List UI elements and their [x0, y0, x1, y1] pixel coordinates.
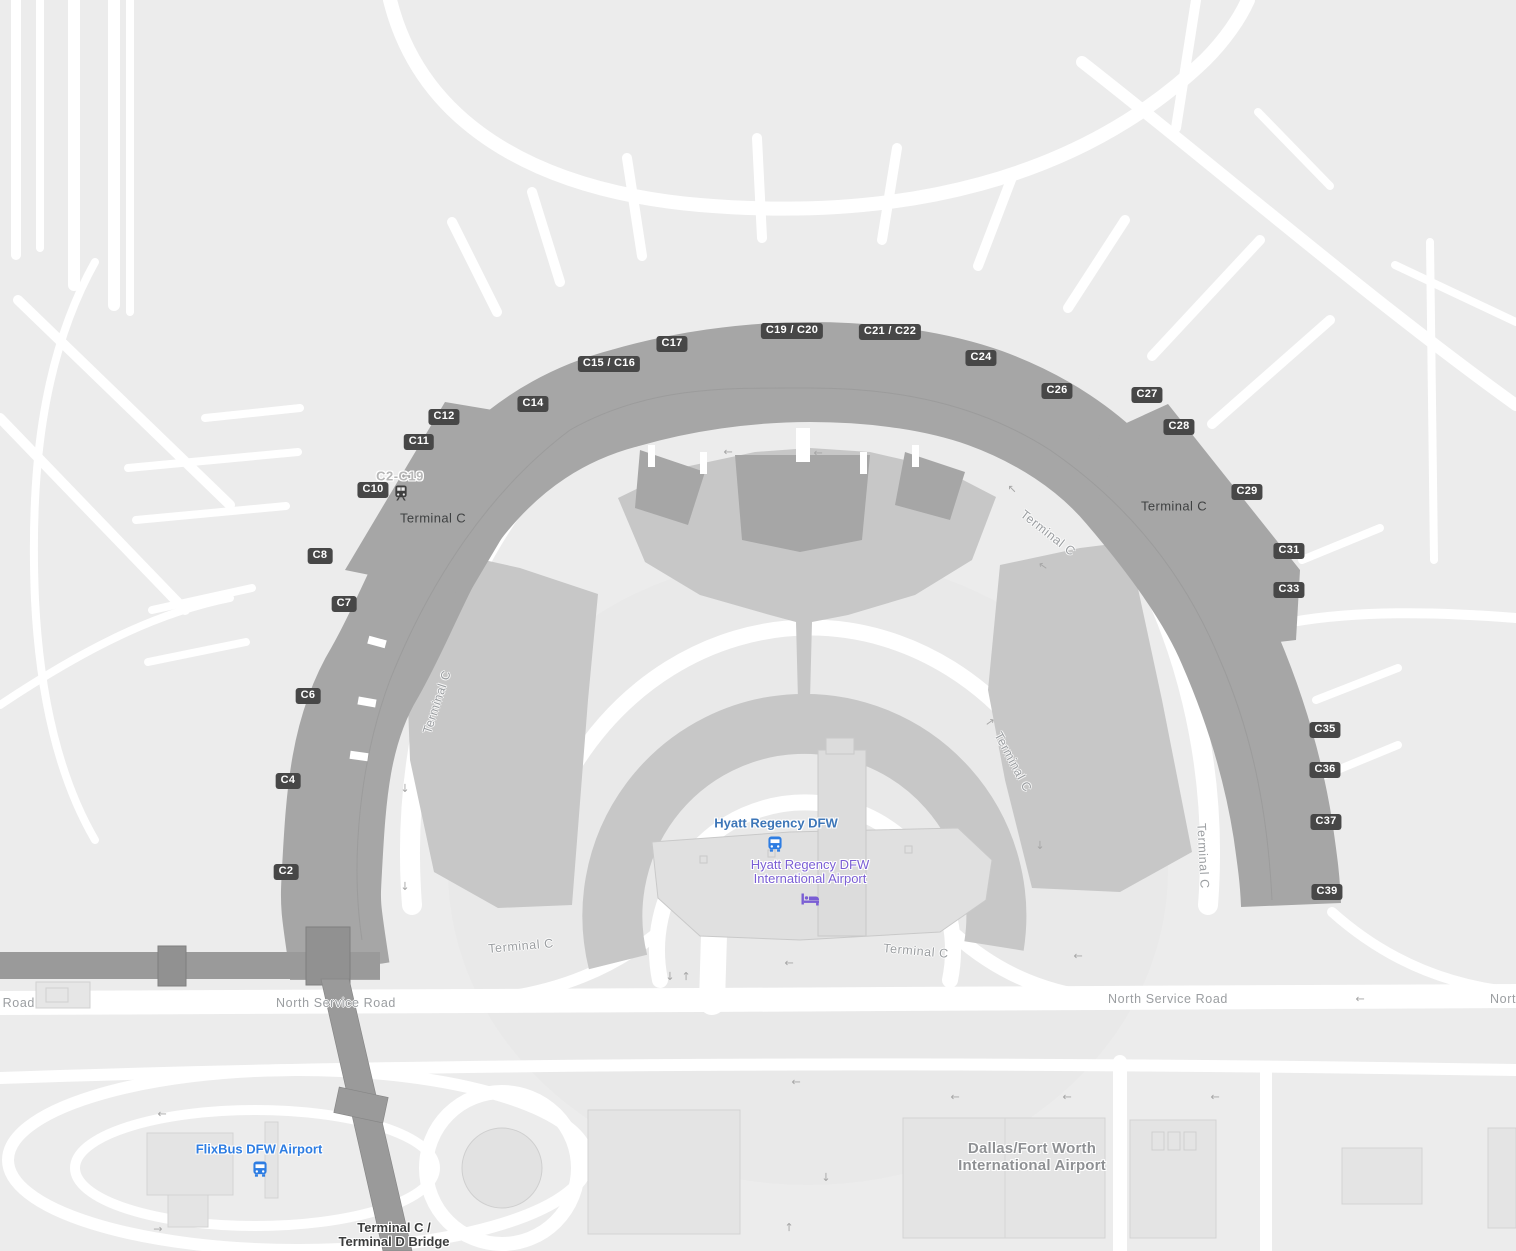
terminal-bridge-label: Terminal C / Terminal D Bridge [338, 1221, 449, 1249]
bed-icon[interactable] [801, 893, 820, 906]
flixbus-stop-label[interactable]: FlixBus DFW Airport [196, 1142, 323, 1157]
traffic-arrow-7: → [681, 971, 692, 980]
gate-badge-c7[interactable]: C7 [332, 596, 357, 612]
dfw-airport-label: Dallas/Fort Worth International Airport [958, 1140, 1106, 1174]
terminal-building-label-1: Terminal C [1141, 499, 1207, 514]
dfw-hq-building [903, 1118, 1105, 1238]
gate-badge-c19c20[interactable]: C19 / C20 [761, 323, 823, 339]
gate-badge-c12[interactable]: C12 [428, 409, 459, 425]
traffic-arrow-10: → [723, 447, 732, 458]
gate-badge-c24[interactable]: C24 [965, 350, 996, 366]
gate-badge-c28[interactable]: C28 [1163, 419, 1194, 435]
traffic-arrow-15: → [1035, 840, 1046, 849]
gate-badge-c21c22[interactable]: C21 / C22 [859, 324, 921, 340]
traffic-arrow-4: → [950, 1092, 959, 1103]
hyatt-hotel-label[interactable]: Hyatt Regency DFW International Airport [751, 858, 869, 886]
gate-badge-c8[interactable]: C8 [308, 548, 333, 564]
traffic-arrow-1: → [1073, 951, 1082, 962]
traffic-arrow-18: → [791, 1077, 800, 1088]
north-service-road [0, 996, 1516, 1003]
bus-icon[interactable] [768, 836, 783, 853]
gate-badge-c36[interactable]: C36 [1309, 762, 1340, 778]
gate-badge-c6[interactable]: C6 [296, 688, 321, 704]
traffic-arrow-20: → [784, 1222, 795, 1231]
traffic-arrow-9: → [400, 881, 411, 890]
traffic-arrow-19: → [821, 1172, 832, 1181]
traffic-arrow-8: → [400, 783, 411, 792]
gate-badge-c10[interactable]: C10 [357, 482, 388, 498]
gate-badge-c39[interactable]: C39 [1311, 884, 1342, 900]
terminal-building-label-0: Terminal C [400, 511, 466, 526]
gate-badge-c33[interactable]: C33 [1273, 582, 1304, 598]
train-icon[interactable] [394, 485, 409, 502]
traffic-arrow-16: → [157, 1109, 166, 1120]
traffic-arrow-6: → [665, 971, 676, 980]
gate-badge-c15c16[interactable]: C15 / C16 [578, 356, 640, 372]
map-canvas [0, 0, 1516, 1251]
traffic-arrow-11: → [813, 448, 822, 459]
gate-badge-c14[interactable]: C14 [517, 396, 548, 412]
gate-badge-c27[interactable]: C27 [1131, 387, 1162, 403]
gate-badge-c17[interactable]: C17 [656, 336, 687, 352]
gate-badge-c35[interactable]: C35 [1309, 722, 1340, 738]
traffic-arrow-5: → [1062, 1092, 1071, 1103]
gate-badge-c29[interactable]: C29 [1231, 484, 1262, 500]
gate-badge-c2[interactable]: C2 [274, 864, 299, 880]
airport-map: Hyatt Regency DFW Hyatt Regency DFW Inte… [0, 0, 1516, 1251]
gate-badge-c31[interactable]: C31 [1273, 543, 1304, 559]
traffic-arrow-3: → [1210, 1092, 1219, 1103]
gate-badge-c4[interactable]: C4 [276, 773, 301, 789]
bus-icon[interactable] [253, 1161, 268, 1178]
road-label-3: North Service Road [1490, 992, 1516, 1006]
gate-badge-c11[interactable]: C11 [404, 434, 434, 450]
road-label-0: North Service Road [276, 996, 396, 1010]
road-label-2: North Service Road [0, 996, 35, 1010]
traffic-arrow-0: → [784, 958, 793, 969]
traffic-arrow-17: → [153, 1224, 162, 1235]
traffic-arrow-2: → [1355, 994, 1364, 1005]
hyatt-bus-stop-label[interactable]: Hyatt Regency DFW [714, 816, 838, 831]
gate-badge-c37[interactable]: C37 [1310, 814, 1341, 830]
gate-badge-c26[interactable]: C26 [1041, 383, 1072, 399]
round-building [462, 1128, 542, 1208]
skylink-guideway [0, 927, 380, 986]
road-label-1: North Service Road [1108, 992, 1228, 1006]
